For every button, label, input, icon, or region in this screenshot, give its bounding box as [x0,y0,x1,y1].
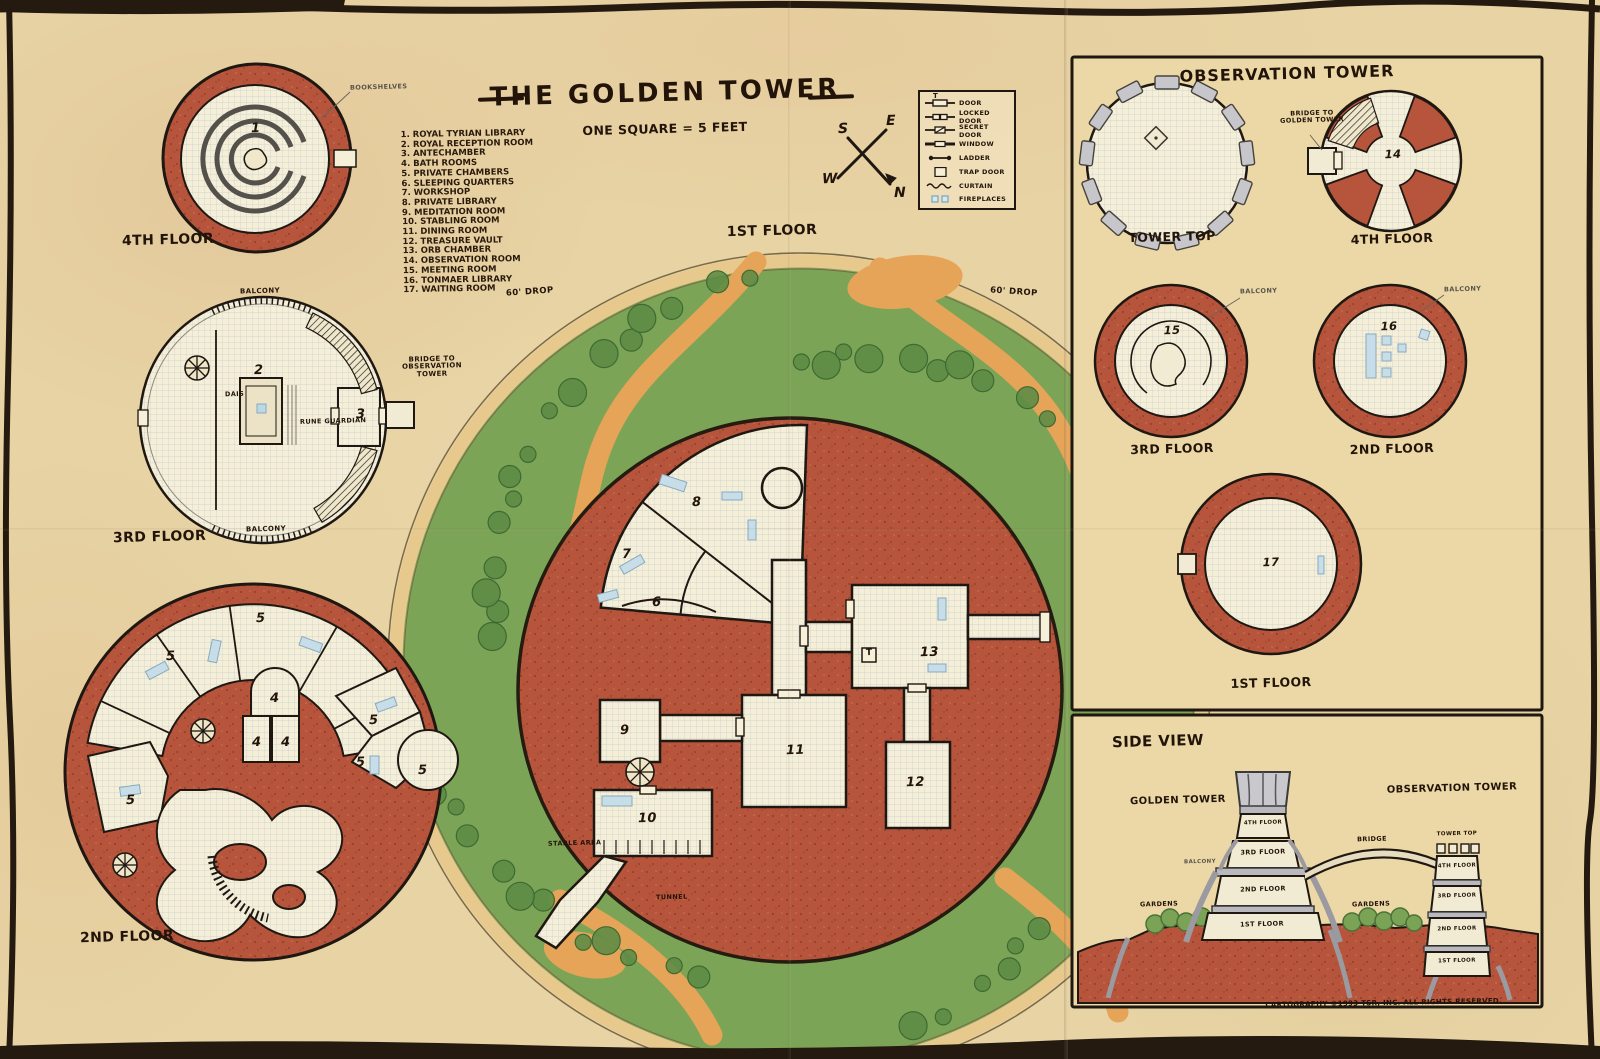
side-gt-2nd: 2ND FLOOR [1240,885,1286,893]
balcony-note: BALCONY [240,287,280,295]
key-label: CURTAIN [959,182,993,190]
side-gardens-note: GARDENS [1140,901,1178,909]
obs-second-floor-plan [1314,285,1466,437]
room-number-6: 6 [652,596,662,610]
side-ot-2nd: 2ND FLOOR [1437,926,1476,933]
room-index: 1. ROYAL TYRIAN LIBRARY 2. ROYAL RECEPTI… [401,129,536,296]
obs-bridge-note: BRIDGE TO GOLDEN TOWER [1280,109,1344,124]
key-label: TRAP DOOR [959,168,1005,176]
compass-rose [838,130,896,184]
locked-door-symbol [925,112,955,122]
key-label: DOOR [959,99,982,107]
golden-tower-first-floor-plan [518,418,1062,962]
side-ot-1st: 1ST FLOOR [1438,959,1476,966]
room-number-14: 14 [1384,148,1401,160]
bookshelves-note: BOOKSHELVES [350,83,408,91]
room-number-5: 5 [356,756,366,770]
floor-label-3rd: 3RD FLOOR [113,529,207,546]
balcony-note: BALCONY [1240,288,1278,296]
compass-label-e: E [886,114,896,129]
room-number-2: 2 [254,364,264,378]
key-row-secret-door: SECRET DOOR [925,124,1009,138]
side-balcony-note: BALCONY [1184,860,1216,867]
room-number-4: 4 [281,736,291,750]
room-number-1: 1 [251,122,261,136]
map-key: DOOR LOCKED DOOR SECRET DOOR WINDOW LADD… [918,90,1016,210]
floor-label-obs-1st: 1ST FLOOR [1230,675,1311,690]
curtain-symbol [925,181,955,191]
side-bridge-note: BRIDGE [1357,836,1387,844]
stable-note: STABLE AREA [548,839,602,847]
floor-label-2nd: 2ND FLOOR [80,929,174,946]
room-number-10: 10 [638,812,657,826]
floor-label-obs-2nd: 2ND FLOOR [1350,441,1435,456]
floor-label-4th: 4TH FLOOR [122,232,214,249]
trap-door-letter: T [933,92,938,100]
key-row-fireplaces: FIREPLACES [925,193,1009,207]
side-gt-4th: 4TH FLOOR [1244,820,1282,827]
side-gt-1st: 1ST FLOOR [1240,920,1284,928]
room-number-16: 16 [1380,320,1397,332]
secret-door-symbol [925,125,955,135]
trap-door-letter: T [866,649,873,659]
compass-label-s: S [838,122,849,137]
room-number-7: 7 [622,548,632,562]
compass-label-n: N [894,186,907,201]
room-number-5: 5 [126,794,136,808]
key-label: LADDER [959,154,990,162]
room-number-5: 5 [369,714,379,728]
key-label: FIREPLACES [959,195,1006,203]
room-number-11: 11 [786,744,805,758]
side-view-title: SIDE VIEW [1112,733,1204,751]
side-ot-top: TOWER TOP [1437,831,1478,838]
room-number-4: 4 [270,692,280,706]
window-symbol [925,139,955,149]
obs-third-floor-plan [1095,285,1247,437]
floor-label-obs-3rd: 3RD FLOOR [1130,441,1214,456]
floor-label-tower-top: TOWER TOP [1128,229,1216,244]
key-row-ladder: LADDER [925,151,1009,165]
room-number-13: 13 [920,646,939,660]
room-number-12: 12 [906,776,925,790]
trap-door-symbol [925,167,955,177]
side-ot-3rd: 3RD FLOOR [1438,893,1477,900]
balcony-note: BALCONY [1444,286,1482,294]
room-number-5: 5 [166,650,176,664]
fireplaces-symbol [925,194,955,204]
floor-label-1st: 1ST FLOOR [727,223,818,240]
key-label: WINDOW [959,140,994,148]
room-number-5: 5 [418,764,428,778]
room-number-15: 15 [1163,324,1180,336]
room-number-4: 4 [252,736,262,750]
room-number-3: 3 [356,408,366,422]
ladder-symbol [925,153,955,163]
side-ot-4th: 4TH FLOOR [1438,863,1476,870]
key-row-window: WINDOW [925,137,1009,151]
golden-tower-third-floor-plan [138,297,414,543]
dais-note: DAIS [225,391,244,398]
tunnel-note: TUNNEL [656,894,688,902]
side-gt-3rd: 3RD FLOOR [1240,848,1285,856]
room-number-9: 9 [620,724,630,738]
room-number-17: 17 [1262,556,1279,568]
room-number-8: 8 [692,496,702,510]
key-row-trap-door: T TRAP DOOR [925,165,1009,179]
compass-label-w: W [822,172,838,187]
balcony-note: BALCONY [246,525,286,533]
key-row-curtain: CURTAIN [925,179,1009,193]
key-label: SECRET DOOR [959,123,1009,139]
golden-tower-fourth-floor-plan [163,64,356,252]
door-symbol [925,98,955,108]
room-number-5: 5 [256,612,266,626]
bridge-note: BRIDGE TO OBSERVATION TOWER [393,355,472,379]
parchment-map-sheet: THE GOLDEN TOWER ONE SQUARE = 5 FEET 1. … [0,0,1600,1059]
side-gardens-note: GARDENS [1352,901,1390,909]
floor-label-obs-4th: 4TH FLOOR [1351,231,1434,246]
